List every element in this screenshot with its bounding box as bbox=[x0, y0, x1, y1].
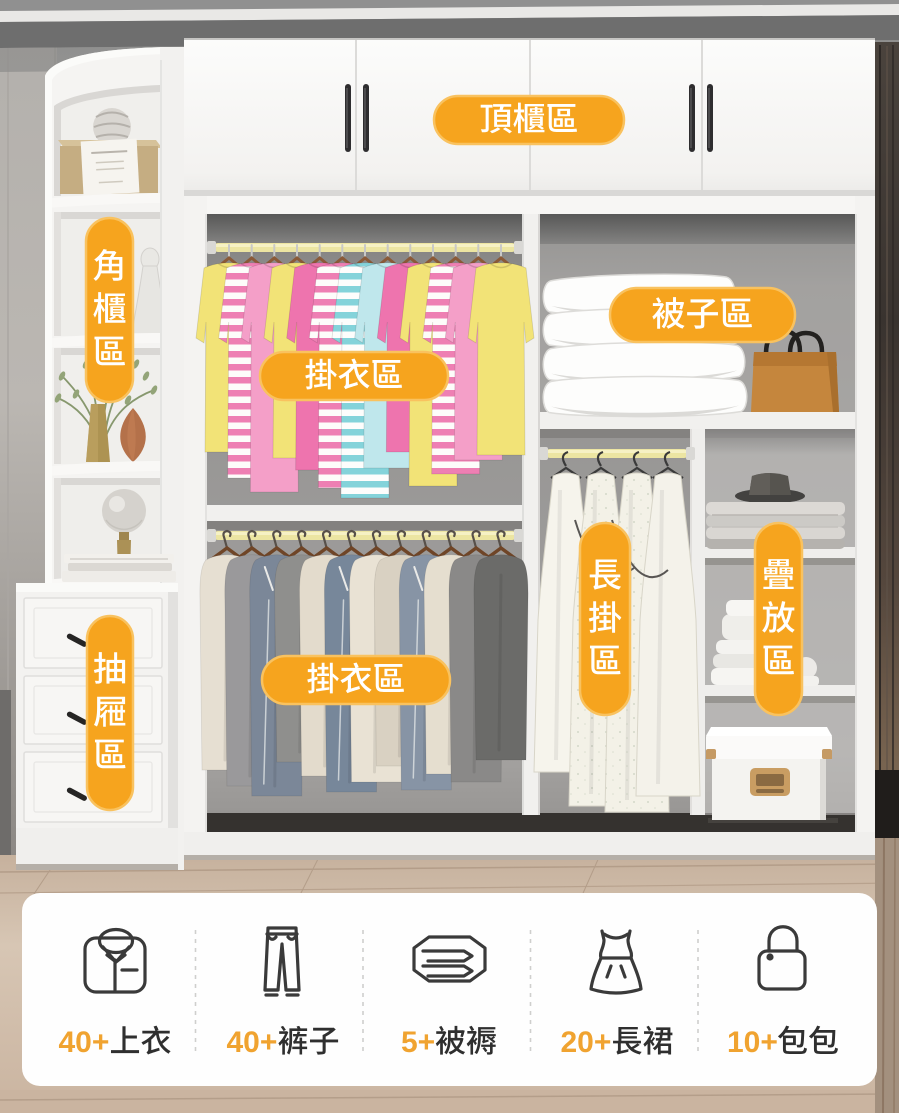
svg-text:20+: 20+ bbox=[561, 1026, 612, 1059]
svg-text:5+: 5+ bbox=[401, 1026, 435, 1059]
svg-text:10+: 10+ bbox=[727, 1026, 778, 1059]
svg-text:40+: 40+ bbox=[59, 1026, 110, 1059]
svg-text:40+: 40+ bbox=[227, 1026, 278, 1059]
